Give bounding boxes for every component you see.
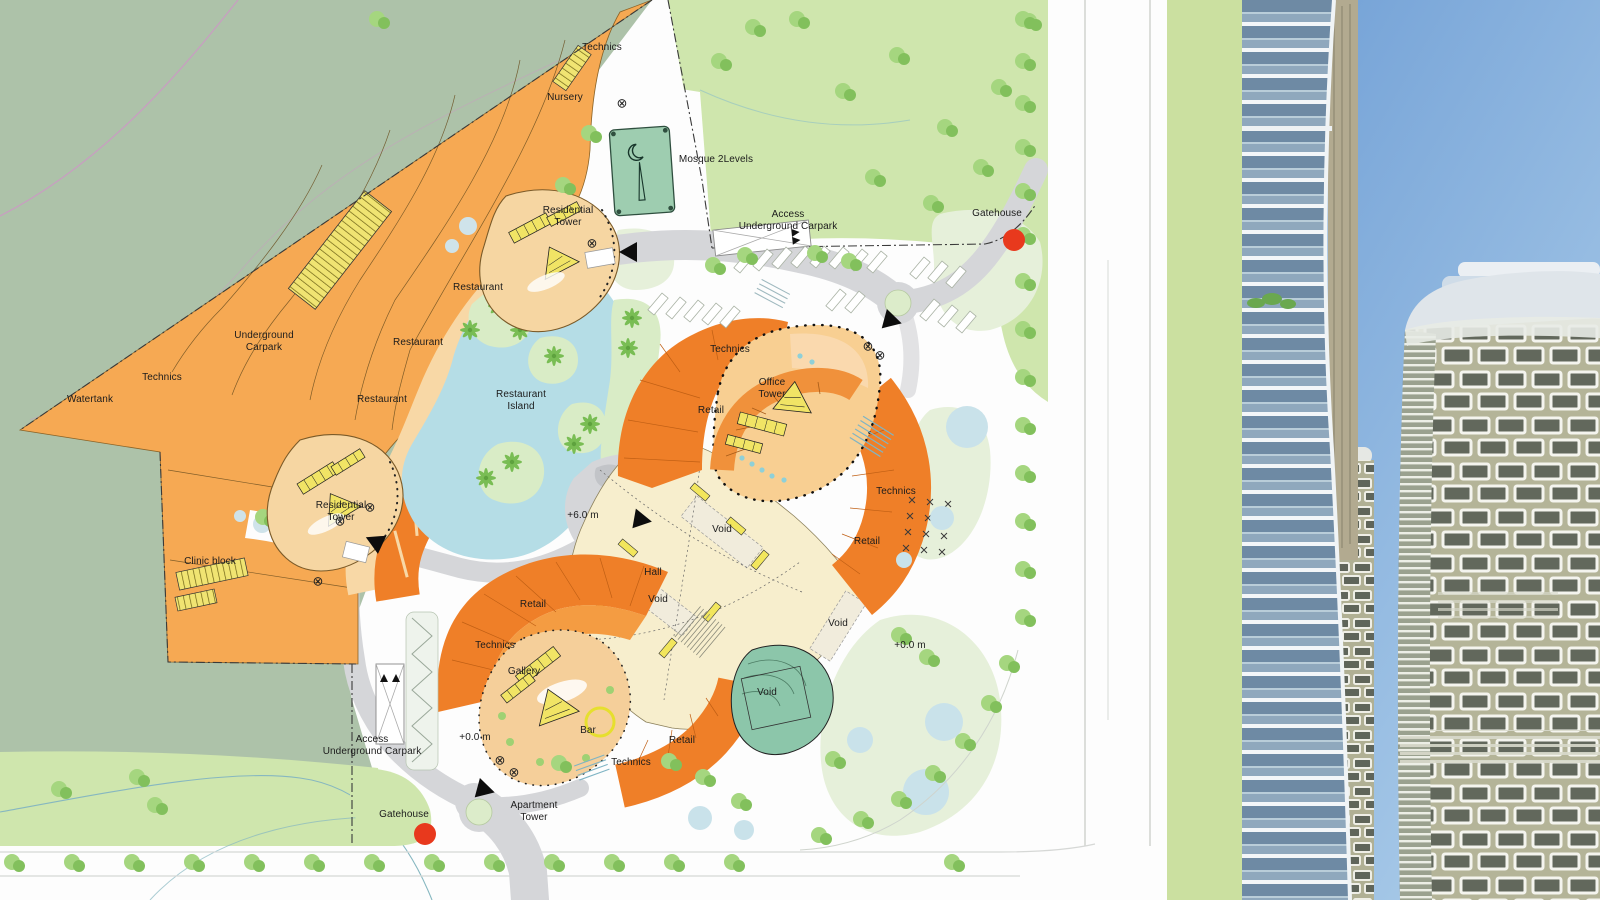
tower-photo-rendering [1242,0,1600,900]
roundabout-south [459,792,499,832]
mosque [609,126,675,216]
tower-left [1242,0,1358,900]
roundabout-north [877,282,919,324]
page: TechnicsNurseryMosque 2LevelsResidential… [0,0,1600,900]
site-plan-drawing [0,0,1242,900]
tower-right [1398,262,1600,900]
access-ramp-south [376,664,404,744]
